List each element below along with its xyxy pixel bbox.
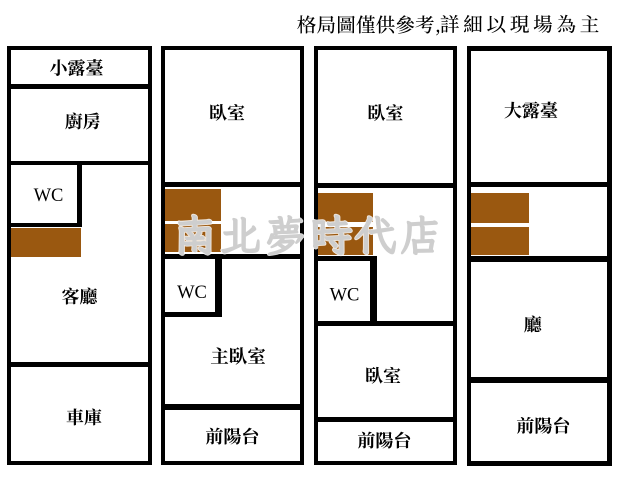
svg-text:WC: WC	[34, 186, 64, 206]
svg-text:WC: WC	[177, 283, 207, 303]
svg-text:WC: WC	[330, 286, 360, 306]
